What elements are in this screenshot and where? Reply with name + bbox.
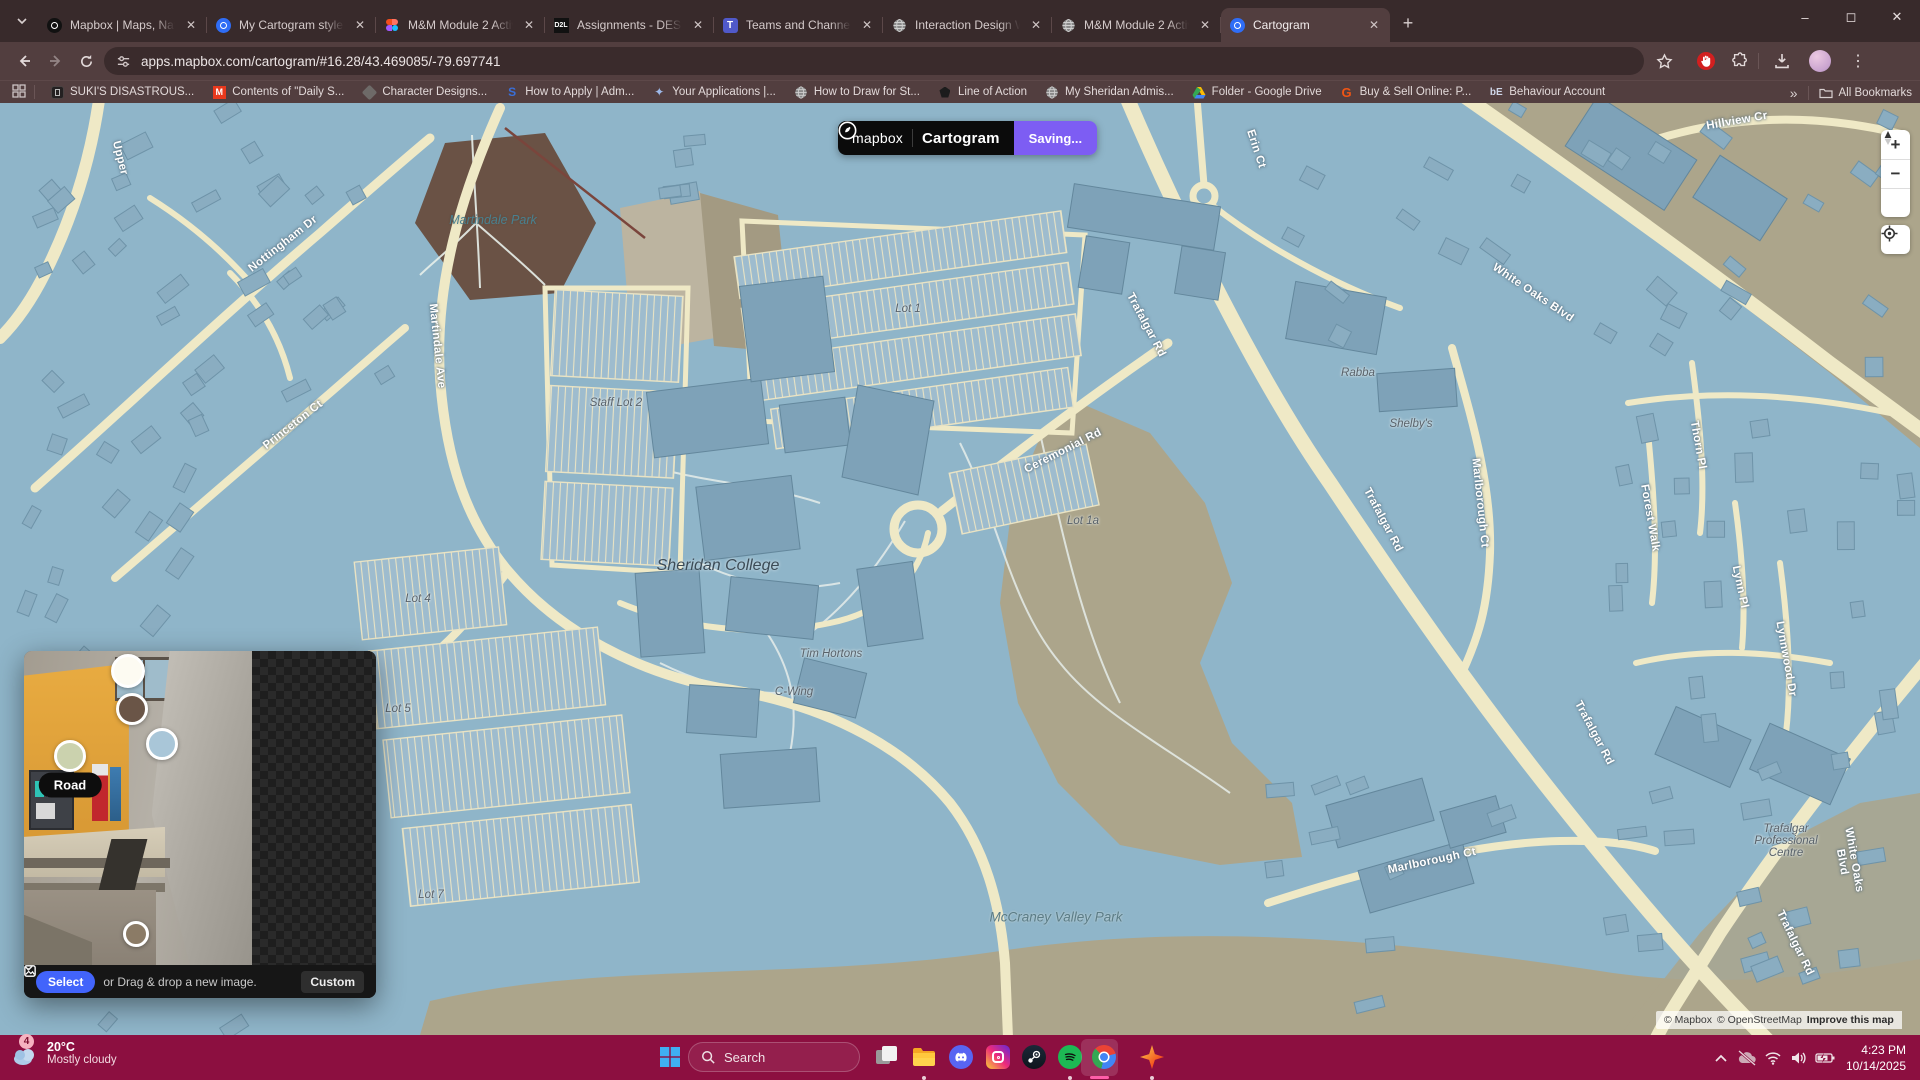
- globe-icon: [892, 18, 907, 33]
- running-app-dot: [922, 1076, 926, 1080]
- browser-tab-5[interactable]: TTeams and Channels | Gen✕: [714, 8, 883, 42]
- maximize-button[interactable]: ◻: [1828, 0, 1874, 34]
- map-attribution: © Mapbox © OpenStreetMap Improve this ma…: [1656, 1011, 1902, 1029]
- cartogram-brand-section: mapbox Cartogram: [838, 121, 1014, 155]
- task-view-icon: [876, 1046, 898, 1068]
- folder-icon: [1819, 87, 1833, 99]
- taskbar-app-file-explorer[interactable]: [910, 1043, 938, 1071]
- reload-icon: [79, 54, 94, 69]
- bookmark-item-2[interactable]: MContents of "Daily S...: [203, 82, 353, 102]
- figma-icon: [386, 19, 398, 31]
- bookmark-item-3[interactable]: Character Designs...: [353, 82, 496, 102]
- tab-close-icon[interactable]: ✕: [183, 17, 199, 33]
- drive-icon: [1192, 86, 1206, 99]
- bookmark-label: SUKI'S DISASTROUS...: [70, 86, 194, 98]
- taskbar-app-discord[interactable]: [947, 1043, 975, 1071]
- globe-icon: [1061, 18, 1076, 33]
- bookmark-label: My Sheridan Admis...: [1065, 86, 1174, 98]
- chevron-down-icon: [24, 965, 33, 971]
- bookmark-star-button[interactable]: [1650, 47, 1678, 75]
- cube-icon: [362, 84, 378, 100]
- compass-icon: [1881, 130, 1895, 146]
- color-swatch-5[interactable]: [123, 921, 149, 947]
- search-placeholder: Search: [724, 1050, 765, 1065]
- puzzle-icon: [1731, 52, 1749, 70]
- bookmark-label: How to Apply | Adm...: [525, 86, 634, 98]
- select-image-button[interactable]: Select: [36, 971, 95, 993]
- running-app-dot: [1068, 1076, 1072, 1080]
- browser-tab-1[interactable]: Mapbox | Maps, Navigatio✕: [38, 8, 207, 42]
- back-arrow-icon: [16, 53, 32, 69]
- downloads-button[interactable]: [1768, 47, 1796, 75]
- running-app-dot: [1150, 1076, 1154, 1080]
- instagram-icon: [986, 1045, 1010, 1069]
- compass-button[interactable]: [1881, 188, 1910, 217]
- grid-icon: [12, 84, 26, 98]
- browser-tab-3[interactable]: M&M Module 2 Activity 1✕: [376, 8, 545, 42]
- drop-hint-text: or Drag & drop a new image.: [103, 975, 256, 989]
- forward-button[interactable]: [42, 47, 70, 75]
- saving-status-badge: Saving...: [1014, 121, 1097, 155]
- windows-logo-icon: [659, 1046, 681, 1068]
- bookmark-item-8[interactable]: My Sheridan Admis...: [1036, 82, 1183, 102]
- weather-widget[interactable]: 4 20°C Mostly cloudy: [10, 1038, 117, 1068]
- active-app-indicator: [1090, 1076, 1109, 1079]
- apps-grid-button[interactable]: [0, 84, 34, 101]
- tab-title: My Cartogram style | Map: [239, 18, 344, 32]
- tab-title: Assignments - DESN2742: [577, 18, 682, 32]
- search-icon: [701, 1050, 715, 1064]
- start-button[interactable]: [656, 1043, 684, 1071]
- taskbar-app-spotify[interactable]: [1056, 1043, 1084, 1071]
- wifi-icon[interactable]: [1760, 1035, 1786, 1080]
- tab-close-icon[interactable]: ✕: [1028, 17, 1044, 33]
- taskbar-app-star-app[interactable]: [1138, 1043, 1166, 1071]
- site-settings-icon[interactable]: [116, 54, 131, 69]
- file-explorer-icon: [912, 1047, 936, 1067]
- d2l-icon: D2L: [554, 18, 569, 33]
- download-icon: [1773, 52, 1791, 70]
- bookmark-label: Behaviour Account: [1509, 86, 1605, 98]
- photo-vending-blue: [110, 767, 121, 820]
- zoom-out-button[interactable]: −: [1881, 159, 1910, 188]
- sheridan-icon: S: [508, 85, 516, 99]
- map-zoom-controls: + −: [1881, 130, 1910, 217]
- chevron-up-icon: [1715, 1054, 1727, 1062]
- battery-charging-glyph: [1815, 1052, 1835, 1064]
- tab-title: Teams and Channels | Gen: [746, 18, 851, 32]
- browser-menu-button[interactable]: ⋮: [1844, 47, 1872, 75]
- bookmarks-right: » All Bookmarks: [1790, 81, 1912, 104]
- tab-close-icon[interactable]: ✕: [1197, 17, 1213, 33]
- chevron-down-icon: [16, 15, 28, 27]
- color-swatch-4-road[interactable]: [54, 740, 86, 772]
- tabs-container: Mapbox | Maps, Navigatio✕My Cartogram st…: [38, 8, 1390, 42]
- back-button[interactable]: [10, 47, 38, 75]
- address-bar[interactable]: apps.mapbox.com/cartogram/#16.28/43.4690…: [104, 47, 1644, 75]
- mapbox-brand-label: mapbox: [852, 130, 903, 146]
- transparent-checker-area: [252, 651, 376, 965]
- tab-close-icon[interactable]: ✕: [352, 17, 368, 33]
- bookmark-label: How to Draw for St...: [814, 86, 920, 98]
- taskbar-app-steam[interactable]: [1020, 1043, 1048, 1071]
- tab-title: M&M Module 2 Activity 1: [1084, 18, 1189, 32]
- behaviour-icon: bE: [1490, 87, 1503, 98]
- star-icon: [1656, 53, 1673, 70]
- tab-title: Mapbox | Maps, Navigatio: [70, 18, 175, 32]
- tab-close-icon[interactable]: ✕: [690, 17, 706, 33]
- teams-icon: T: [723, 18, 738, 33]
- globe-icon: [1045, 85, 1059, 100]
- taskbar-search[interactable]: Search: [688, 1042, 860, 1072]
- tab-title: Interaction Design Week: [915, 18, 1020, 32]
- photo-railing-top: [24, 858, 170, 867]
- bookmark-item-7[interactable]: Line of Action: [929, 82, 1036, 102]
- browser-tab-6[interactable]: Interaction Design Week✕: [883, 8, 1052, 42]
- select-label: Select: [48, 975, 83, 989]
- color-swatch-1[interactable]: [111, 654, 145, 688]
- close-window-button[interactable]: ✕: [1874, 0, 1920, 34]
- mapbox-icon: [216, 18, 231, 33]
- bookmark-item-4[interactable]: SHow to Apply | Adm...: [496, 82, 643, 102]
- reload-button[interactable]: [72, 47, 100, 75]
- onedrive-status-icon[interactable]: [1734, 1035, 1760, 1080]
- bookmarks-divider: [34, 85, 35, 99]
- tab-title: Cartogram: [1253, 18, 1358, 32]
- taskbar-app-chrome[interactable]: [1090, 1043, 1118, 1071]
- tab-search-button[interactable]: [8, 7, 36, 35]
- browser-tab-4[interactable]: D2LAssignments - DESN2742✕: [545, 8, 714, 42]
- road-swatch-tooltip: Road: [39, 773, 102, 798]
- geolocate-button[interactable]: [1881, 225, 1910, 254]
- browser-tab-2[interactable]: My Cartogram style | Map✕: [207, 8, 376, 42]
- volume-icon[interactable]: [1786, 1035, 1812, 1080]
- all-bookmarks-button[interactable]: All Bookmarks: [1819, 87, 1913, 99]
- color-swatch-2[interactable]: [116, 693, 148, 725]
- mapbox-icon: [47, 18, 62, 33]
- battery-icon[interactable]: [1812, 1035, 1838, 1080]
- weather-condition: Mostly cloudy: [47, 1054, 117, 1066]
- chrome-icon: [1092, 1045, 1116, 1069]
- speaker-glyph: [1790, 1051, 1808, 1065]
- kijiji-icon: G: [1342, 85, 1352, 100]
- taskbar-app-task-view[interactable]: [873, 1043, 901, 1071]
- bookmarks-list: SUKI'S DISASTROUS...MContents of "Daily …: [41, 82, 1614, 102]
- color-swatch-3[interactable]: [146, 728, 178, 760]
- mapbox-logo-icon: [838, 121, 857, 140]
- cloud-off-icon: [1736, 1049, 1758, 1067]
- bookmark-label: Folder - Google Drive: [1212, 86, 1322, 98]
- bookmark-item-6[interactable]: How to Draw for St...: [785, 82, 929, 102]
- avatar: [1809, 50, 1831, 72]
- profile-avatar[interactable]: [1806, 47, 1834, 75]
- osm-attribution-link[interactable]: © OpenStreetMap: [1717, 1014, 1802, 1026]
- wifi-glyph: [1764, 1051, 1782, 1065]
- bookmark-label: Your Applications |...: [672, 86, 776, 98]
- spotify-icon: [1058, 1045, 1082, 1069]
- browser-tab-bar: Mapbox | Maps, Navigatio✕My Cartogram st…: [0, 0, 1920, 42]
- cartogram-header: mapbox Cartogram Saving...: [838, 121, 1097, 155]
- custom-label: Custom: [310, 975, 355, 989]
- bookmarks-divider-2: [1808, 86, 1809, 100]
- weather-temp: 20°C: [47, 1040, 117, 1054]
- tab-close-icon[interactable]: ✕: [521, 17, 537, 33]
- mapbox-attribution-link[interactable]: © Mapbox: [1664, 1014, 1712, 1026]
- brand-divider: [912, 129, 913, 147]
- clock-time: 4:23 PM: [1846, 1042, 1906, 1058]
- new-tab-button[interactable]: +: [1394, 9, 1422, 37]
- clock-date: 10/14/2025: [1846, 1058, 1906, 1074]
- discord-icon: [949, 1045, 973, 1069]
- bookmark-item-10[interactable]: GBuy & Sell Online: P...: [1331, 82, 1481, 102]
- bookmarks-bar: SUKI'S DISASTROUS...MContents of "Daily …: [0, 80, 1920, 103]
- tray-chevron-button[interactable]: [1708, 1035, 1734, 1080]
- cartogram-app-name: Cartogram: [922, 130, 1000, 147]
- weather-alert-badge: 4: [19, 1034, 34, 1049]
- browser-tab-7[interactable]: M&M Module 2 Activity 1✕: [1052, 8, 1221, 42]
- bookmark-label: Contents of "Daily S...: [232, 86, 344, 98]
- adblock-extension-button[interactable]: [1692, 47, 1720, 75]
- bookmark-item-9[interactable]: Folder - Google Drive: [1183, 82, 1331, 102]
- brush-icon: [939, 87, 950, 98]
- bookmark-label: Line of Action: [958, 86, 1027, 98]
- browser-tab-8[interactable]: Cartogram✕: [1221, 8, 1390, 42]
- custom-style-dropdown[interactable]: Custom: [301, 971, 364, 993]
- tab-title: M&M Module 2 Activity 1: [408, 18, 513, 32]
- toolbar-divider: [1758, 53, 1759, 69]
- globe-icon: [794, 85, 808, 100]
- cartogram-image-panel: Road Select or Drag & drop a new image. …: [24, 651, 376, 998]
- star-app-icon: [1140, 1045, 1164, 1069]
- tab-close-icon[interactable]: ✕: [1366, 17, 1382, 33]
- steam-icon: [1022, 1045, 1046, 1069]
- all-bookmarks-label: All Bookmarks: [1839, 87, 1913, 99]
- notebook-icon: [51, 86, 64, 99]
- url-text[interactable]: apps.mapbox.com/cartogram/#16.28/43.4690…: [141, 54, 501, 69]
- extensions-button[interactable]: [1726, 47, 1754, 75]
- browser-toolbar: apps.mapbox.com/cartogram/#16.28/43.4690…: [0, 42, 1920, 80]
- bookmark-label: Buy & Sell Online: P...: [1360, 86, 1472, 98]
- windows-taskbar: 4 20°C Mostly cloudy Search: [0, 1035, 1920, 1080]
- bookmark-item-1[interactable]: SUKI'S DISASTROUS...: [41, 82, 203, 102]
- mapbox-icon: [1230, 18, 1245, 33]
- bookmark-item-11[interactable]: bEBehaviour Account: [1480, 82, 1614, 102]
- desktop: Mapbox | Maps, Navigatio✕My Cartogram st…: [0, 0, 1920, 1080]
- panel-action-bar: Select or Drag & drop a new image. Custo…: [24, 965, 376, 998]
- bookmark-item-5[interactable]: ✦Your Applications |...: [643, 82, 785, 102]
- weather-icon-wrap: 4: [10, 1038, 40, 1068]
- geolocate-icon: [1881, 225, 1898, 242]
- daily-icon: M: [213, 86, 226, 99]
- improve-map-link[interactable]: Improve this map: [1807, 1014, 1894, 1026]
- system-tray: 4:23 PM 10/14/2025: [1708, 1035, 1920, 1080]
- hand-icon: [1696, 51, 1716, 71]
- tab-close-icon[interactable]: ✕: [859, 17, 875, 33]
- taskbar-app-instagram[interactable]: [984, 1043, 1012, 1071]
- bookmark-label: Character Designs...: [382, 86, 487, 98]
- sparkle-icon: ✦: [654, 85, 664, 99]
- taskbar-clock[interactable]: 4:23 PM 10/14/2025: [1846, 1042, 1906, 1074]
- bookmarks-overflow-button[interactable]: »: [1790, 85, 1798, 101]
- forward-arrow-icon: [48, 53, 64, 69]
- window-controls: – ◻ ✕: [1782, 0, 1920, 34]
- map-canvas[interactable]: Trafalgar RdTrafalgar RdTrafalgar RdTraf…: [0, 103, 1920, 1035]
- minimize-button[interactable]: –: [1782, 0, 1828, 34]
